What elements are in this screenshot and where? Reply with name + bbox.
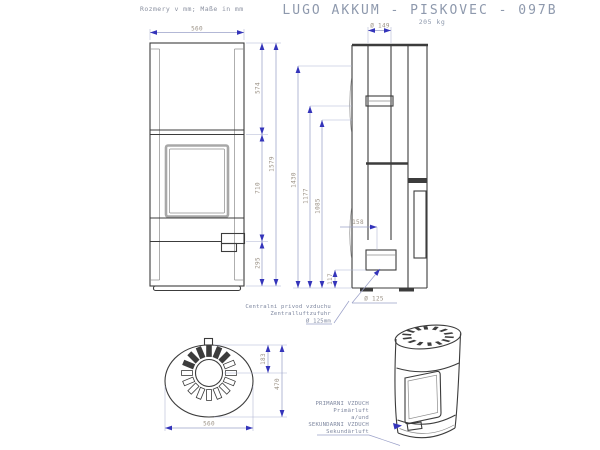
side-back-band <box>408 178 427 183</box>
door-window-frame <box>166 146 228 217</box>
iso-upper-seam <box>397 363 460 372</box>
side-foot-rear <box>399 289 414 292</box>
dim-inlet-offset-value: 158 <box>352 219 364 226</box>
dim-front-width: 560 <box>150 26 244 41</box>
top-view: 183 470 560 <box>165 339 287 432</box>
dim-door-height-value: 710 <box>255 182 262 194</box>
iso-body-left-edge <box>395 339 398 433</box>
dim-flue-diameter: Ø 149 <box>368 23 391 44</box>
weight-label: 205 kg <box>419 18 445 26</box>
dim-inlet-offset: 158 <box>340 219 377 250</box>
dim-side-heights: 1430 1177 1085 <box>291 66 353 288</box>
dim-inlet-diameter: Ø 125 <box>352 269 397 303</box>
secondary-air-label-cz: SEKUNDARNI VZDUCH <box>308 422 369 428</box>
iso-body-right-edge <box>455 334 461 429</box>
dim-front-heights: 574 710 295 1579 <box>246 43 281 286</box>
dim-flue-offset-value: 183 <box>260 353 267 365</box>
drawing-title: LUGO AKKUM - PISKOVEC - 097B <box>282 3 557 18</box>
side-front-curve-lower <box>350 208 352 258</box>
front-view: 560 574 710 295 1579 <box>150 26 281 291</box>
dim-1177-value: 1177 <box>303 188 310 204</box>
dim-upper-height-value: 574 <box>255 82 262 94</box>
iso-door-glass <box>408 375 438 419</box>
side-view: Ø 149 1430 1177 1085 158 117 <box>245 23 428 325</box>
iso-view: PRIMARNI VZDUCH Primärluft a/und SEKUNDA… <box>308 322 462 445</box>
dim-top-width-value: 560 <box>203 421 215 428</box>
top-flue-opening <box>196 360 223 387</box>
side-front-curve-upper <box>350 78 352 132</box>
dim-total-height-value: 1579 <box>269 156 276 172</box>
central-air-label-cz: Centralni privod vzduchu <box>245 304 331 310</box>
technical-drawing-sheet: Rozmery v mm; Maße in mm LUGO AKKUM - PI… <box>0 0 600 450</box>
air-label-conjunction: a/und <box>351 415 369 421</box>
front-body-outline <box>150 43 244 286</box>
header: Rozmery v mm; Maße in mm LUGO AKKUM - PI… <box>140 3 558 26</box>
dim-1430-value: 1430 <box>291 172 298 188</box>
central-air-label: Centralni privod vzduchu Zentralluftzufu… <box>245 301 349 325</box>
dim-depth-value: 470 <box>274 378 281 390</box>
door-window-glass <box>170 149 225 213</box>
dim-inlet-diameter-value: Ø 125 <box>364 296 384 303</box>
units-note: Rozmery v mm; Maße in mm <box>140 5 244 13</box>
iso-body-bottom <box>398 428 455 438</box>
air-labels: PRIMARNI VZDUCH Primärluft a/und SEKUNDA… <box>308 401 400 446</box>
side-rear-niche <box>414 191 426 258</box>
front-plinth <box>154 286 241 291</box>
dim-flue-diameter-value: Ø 149 <box>370 23 390 30</box>
iso-air-slider <box>407 422 422 430</box>
iso-top-slot-ring <box>399 325 456 347</box>
central-air-label-de: Zentralluftzufuhr <box>270 311 331 317</box>
central-air-label-size: Ø 125mm <box>306 318 331 325</box>
dim-1085-value: 1085 <box>315 198 322 214</box>
dim-inlet-height: 117 <box>327 270 366 288</box>
front-side-panels <box>150 49 244 280</box>
air-control-box <box>222 234 245 244</box>
drawing-canvas: Rozmery v mm; Maße in mm LUGO AKKUM - PI… <box>0 0 600 450</box>
central-air-inlet-box <box>366 250 396 270</box>
dim-inlet-height-value: 117 <box>327 273 334 285</box>
dim-front-width-value: 560 <box>191 26 203 33</box>
primary-air-label-de: Primärluft <box>333 408 369 414</box>
dim-base-height-value: 295 <box>255 257 262 269</box>
secondary-air-label-de: Sekundärluft <box>326 429 369 435</box>
primary-air-label-cz: PRIMARNI VZDUCH <box>315 401 369 407</box>
top-rear-notch <box>205 339 213 346</box>
